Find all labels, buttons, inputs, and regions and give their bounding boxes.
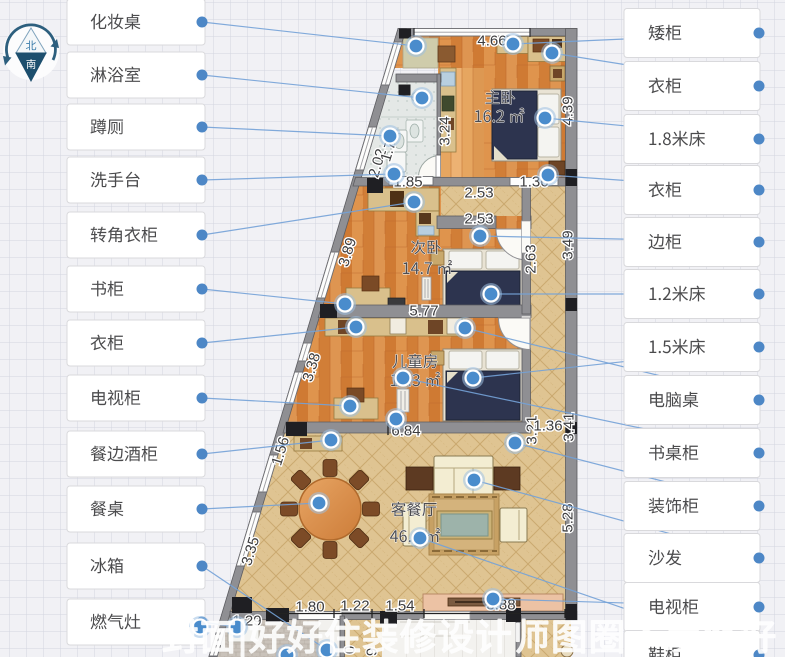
svg-text:3.49: 3.49 [559,230,576,259]
svg-text:1.22: 1.22 [340,597,369,614]
svg-text:4.66: 4.66 [477,32,506,49]
svg-text:2.63: 2.63 [522,244,539,273]
svg-text:1.54: 1.54 [385,597,414,614]
svg-text:2.53: 2.53 [464,210,493,227]
svg-text:5.77: 5.77 [409,302,438,319]
svg-text:1.80: 1.80 [295,598,324,615]
svg-text:1.36: 1.36 [533,417,562,434]
svg-text:2.53: 2.53 [464,184,493,201]
svg-text:3.41: 3.41 [560,412,577,441]
svg-text:3.24: 3.24 [436,116,453,145]
